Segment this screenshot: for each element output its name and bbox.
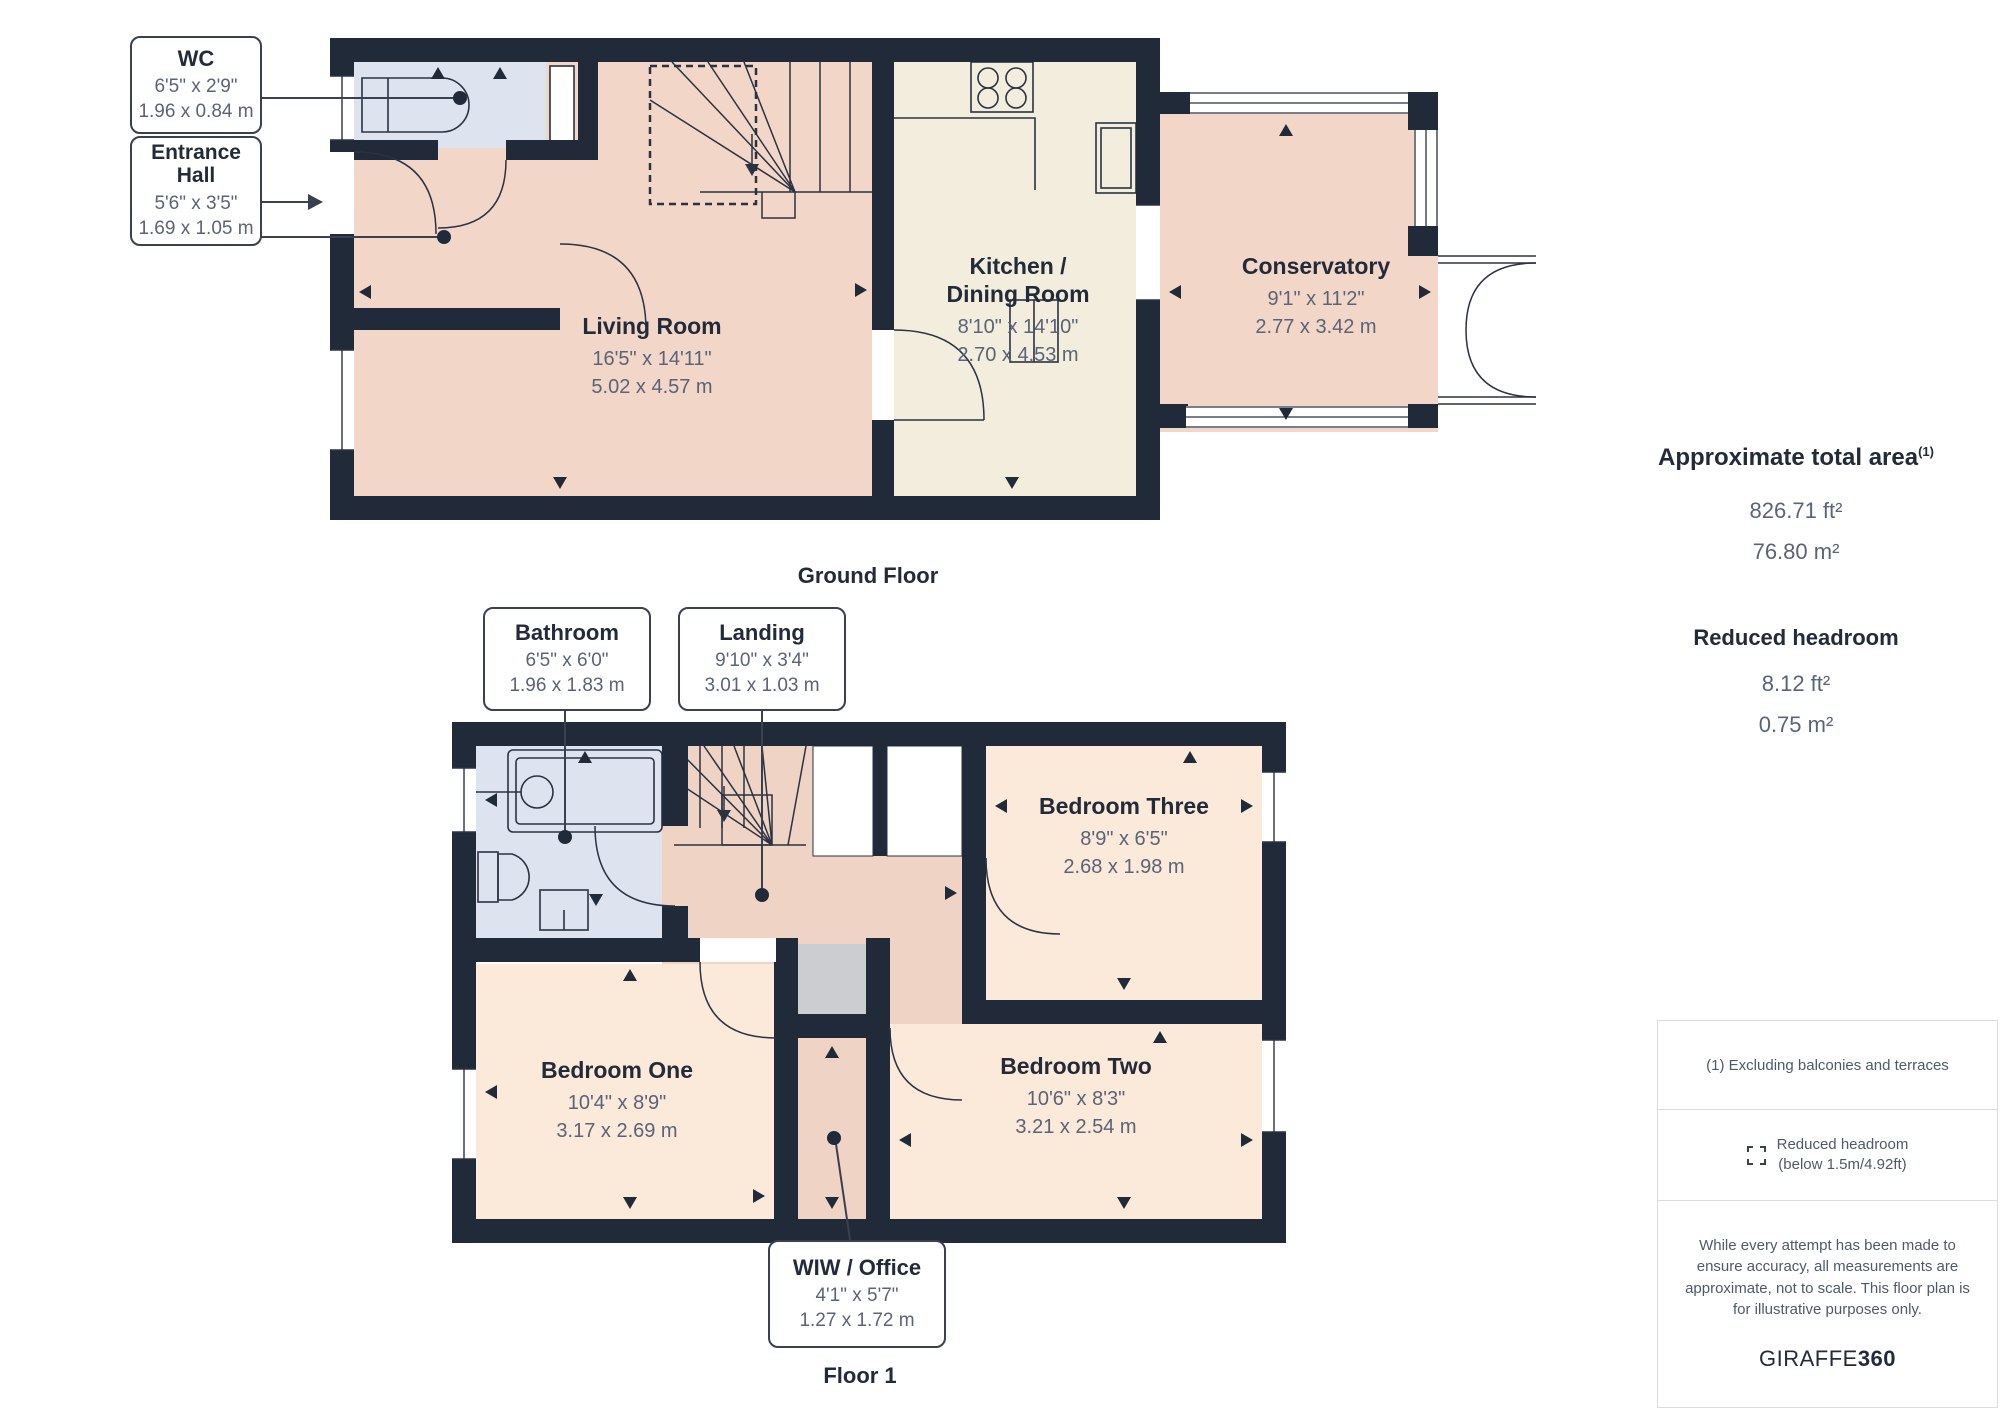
- bedroom-one-door-opening: [700, 938, 776, 962]
- total-area-title: Approximate total area(1): [1620, 444, 1972, 472]
- stair-void-2: [887, 746, 962, 856]
- callout-dims-ft: 9'10" x 3'4": [715, 650, 809, 672]
- ground-floor-caption: Ground Floor: [718, 563, 1018, 589]
- callout-dims-ft: 6'5" x 2'9": [154, 76, 237, 98]
- bathroom-leader-dot: [558, 830, 572, 844]
- reduced-headroom-m: 0.75 m²: [1620, 712, 1972, 738]
- window: [452, 768, 476, 832]
- reduced-headroom-ft: 8.12 ft²: [1620, 671, 1972, 697]
- floorplan-page: { "palette": { "wall": "#212A38", "line"…: [0, 0, 2000, 1414]
- french-doors: [1438, 256, 1536, 404]
- disclaimer-row: While every attempt has been made to ens…: [1658, 1201, 1997, 1372]
- callout-name: Landing: [719, 621, 805, 645]
- entrance-arrow-head: [308, 194, 323, 210]
- kitchen-floor: [894, 62, 1136, 496]
- footnote-row: (1) Excluding balconies and terraces: [1658, 1021, 1997, 1110]
- total-area-m: 76.80 m²: [1620, 539, 1972, 565]
- wc-callout: WC 6'5" x 2'9" 1.96 x 0.84 m: [130, 36, 262, 134]
- callout-dims-ft: 5'6" x 3'5": [154, 193, 237, 215]
- bedroom-three-floor: [986, 746, 1262, 1000]
- giraffe360-logo: GIRAFFE360: [1658, 1346, 1997, 1372]
- floor1-plan: [452, 707, 1286, 1243]
- legend-line1: Reduced headroom: [1777, 1135, 1909, 1155]
- total-area-ft: 826.71 ft²: [1620, 498, 1972, 524]
- conservatory-window-bottom: [1186, 406, 1408, 428]
- reduced-headroom-title: Reduced headroom: [1620, 625, 1972, 651]
- wiw-office-floor: [798, 1014, 866, 1219]
- reduced-headroom-icon: [1747, 1146, 1766, 1165]
- window: [330, 350, 354, 450]
- callout-name: WC: [178, 47, 215, 71]
- hall-leader-dot: [437, 230, 451, 244]
- washbasin-icon: [362, 78, 469, 132]
- callout-name: Entrance Hall: [146, 142, 246, 187]
- ground-floor-plan: [258, 38, 1536, 520]
- wiw-leader-dot: [827, 1131, 841, 1145]
- disclaimer-text: While every attempt has been made to ens…: [1677, 1235, 1979, 1320]
- wc-door-panel: [550, 66, 574, 144]
- bedroom-two-floor: [890, 1024, 1262, 1219]
- kitchen-conservatory-opening: [1136, 205, 1160, 300]
- callout-dims-m: 1.69 x 1.05 m: [138, 218, 253, 240]
- landing-leader-dot: [755, 888, 769, 902]
- conservatory-floor: [1160, 92, 1438, 432]
- callout-dims-m: 1.96 x 1.83 m: [509, 675, 624, 697]
- window: [452, 1069, 476, 1159]
- landing-callout: Landing 9'10" x 3'4" 3.01 x 1.03 m: [678, 607, 846, 711]
- callout-dims-ft: 4'1" x 5'7": [815, 1285, 898, 1307]
- bathroom-callout: Bathroom 6'5" x 6'0" 1.96 x 1.83 m: [483, 607, 651, 711]
- legend-line2: (below 1.5m/4.92ft): [1777, 1155, 1909, 1175]
- area-summary: Approximate total area(1) 826.71 ft² 76.…: [1620, 444, 1972, 738]
- footnote-text: (1) Excluding balconies and terraces: [1706, 1057, 1949, 1074]
- callout-dims-m: 3.01 x 1.03 m: [704, 675, 819, 697]
- bedroom-one-floor: [476, 964, 774, 1219]
- stair-void-1: [813, 746, 873, 856]
- callout-dims-m: 1.96 x 0.84 m: [138, 101, 253, 123]
- wc-leader-dot: [453, 91, 467, 105]
- void-gray: [798, 944, 866, 1014]
- window: [1262, 772, 1286, 842]
- wiw-office-callout: WIW / Office 4'1" x 5'7" 1.27 x 1.72 m: [768, 1240, 946, 1348]
- conservatory-window-right: [1414, 130, 1438, 226]
- callout-dims-ft: 6'5" x 6'0": [525, 650, 608, 672]
- floor1-caption: Floor 1: [710, 1363, 1010, 1389]
- window: [1262, 1040, 1286, 1132]
- legend-text: Reduced headroom (below 1.5m/4.92ft): [1777, 1135, 1909, 1176]
- footnote-marker: (1): [1918, 444, 1934, 459]
- callout-dims-m: 1.27 x 1.72 m: [799, 1310, 914, 1332]
- front-door-opening: [330, 152, 354, 234]
- ground-floor-room-fills: [354, 62, 1438, 496]
- kitchen-door-opening: [872, 330, 894, 420]
- entrance-hall-callout: Entrance Hall 5'6" x 3'5" 1.69 x 1.05 m: [130, 136, 262, 246]
- conservatory-window-top: [1190, 92, 1408, 114]
- callout-name: Bathroom: [515, 621, 619, 645]
- legend-row: Reduced headroom (below 1.5m/4.92ft): [1658, 1110, 1997, 1201]
- window: [330, 76, 354, 140]
- callout-name: WIW / Office: [793, 1256, 921, 1280]
- notes-box: (1) Excluding balconies and terraces Red…: [1657, 1020, 1998, 1408]
